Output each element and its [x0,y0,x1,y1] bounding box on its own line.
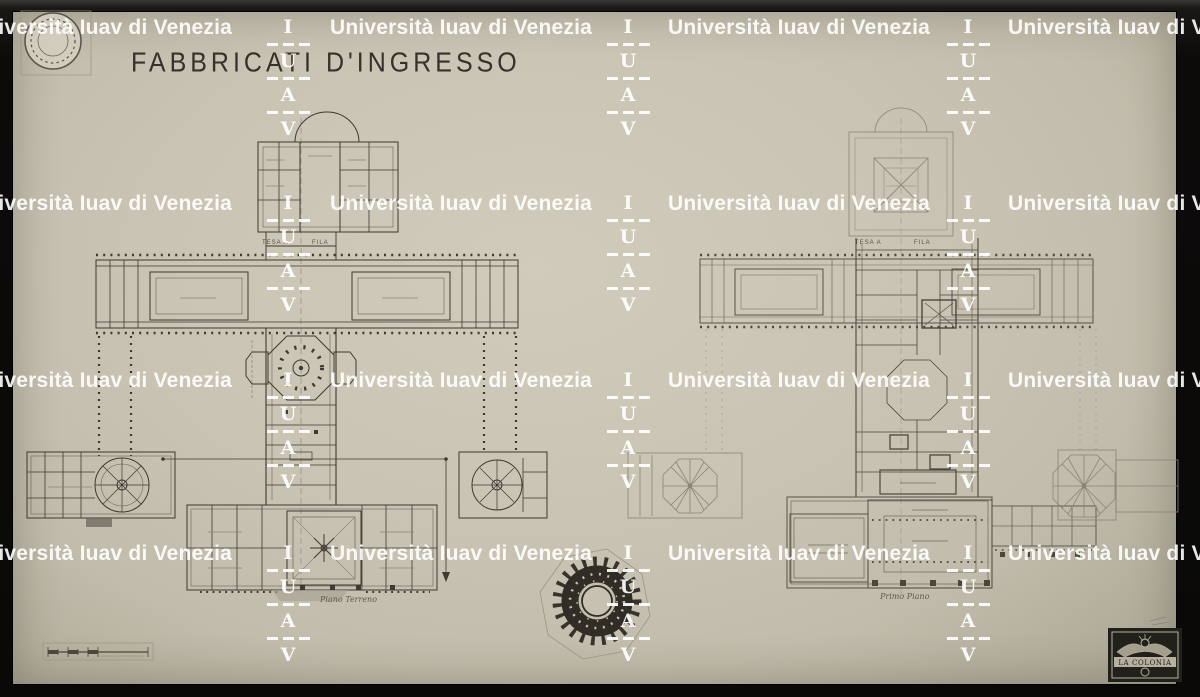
left-plan-drawing [27,112,547,601]
drawing-title: FABBRICATI D'INGRESSO [131,47,521,79]
publisher-stamp-label: LA COLONIA [1118,659,1172,667]
left-plan-axis-label-right: FILA [312,240,329,246]
scale-bar [43,643,153,660]
right-plan-caption: Primo Piano [879,592,930,601]
right-plan-axis-label-right: FILA [914,240,931,246]
publisher-stamp-box [1108,617,1182,682]
right-plan-axis-label-left: TESA A [855,240,882,246]
left-plan-caption: Piano Terreno [319,595,377,604]
architectural-drawing-canvas: TESA A FILA Piano Terreno [0,0,1200,697]
emboss-stamp [21,11,91,75]
starburst-rosette [540,549,650,659]
left-plan-axis-label-left: TESA A [262,240,289,246]
right-plan-drawing [628,108,1178,596]
